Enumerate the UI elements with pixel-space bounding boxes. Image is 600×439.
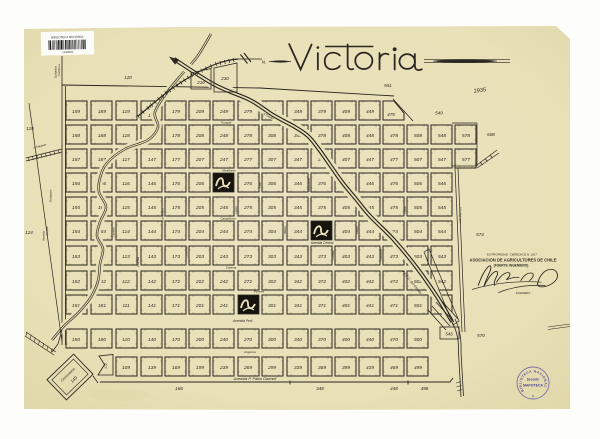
svg-text:399: 399 (342, 365, 350, 371)
svg-text:308: 308 (268, 133, 276, 139)
svg-text:400: 400 (342, 337, 350, 343)
svg-text:1010991: 1010991 (62, 50, 73, 54)
svg-text:172: 172 (104, 363, 108, 369)
svg-text:476: 476 (390, 181, 398, 187)
svg-text:Avenida: Avenida (42, 231, 46, 243)
svg-text:498: 498 (421, 386, 429, 391)
svg-text:349: 349 (294, 109, 302, 115)
svg-text:175: 175 (172, 205, 180, 211)
svg-text:159: 159 (72, 109, 80, 115)
svg-text:N.: N. (262, 60, 267, 65)
svg-text:Caupolican: Caupolican (220, 217, 235, 221)
svg-text:Prat: Prat (258, 182, 262, 187)
svg-text:339: 339 (294, 365, 302, 371)
svg-text:188: 188 (98, 133, 106, 139)
svg-text:499: 499 (414, 365, 422, 371)
svg-text:373: 373 (318, 254, 326, 260)
svg-text:343: 343 (294, 254, 302, 260)
svg-text:Freire: Freire (403, 206, 407, 214)
svg-text:407: 407 (342, 157, 350, 163)
svg-text:301: 301 (268, 303, 276, 309)
svg-text:577: 577 (462, 157, 470, 163)
svg-text:543: 543 (438, 254, 446, 260)
svg-text:INGENIERO: INGENIERO (516, 291, 531, 295)
svg-text:304: 304 (268, 229, 276, 235)
svg-text:340: 340 (294, 337, 302, 343)
svg-text:449: 449 (366, 109, 374, 115)
svg-text:201: 201 (195, 303, 204, 309)
svg-text:470: 470 (390, 337, 398, 343)
svg-text:500: 500 (414, 337, 422, 343)
svg-text:277: 277 (243, 157, 252, 163)
svg-text:376: 376 (318, 181, 326, 187)
svg-text:109: 109 (122, 365, 130, 371)
svg-text:143: 143 (148, 254, 156, 260)
svg-text:448: 448 (366, 133, 374, 139)
svg-text:269: 269 (243, 365, 252, 371)
svg-text:302: 302 (268, 279, 276, 285)
svg-text:477: 477 (390, 157, 398, 163)
svg-text:Lautaro: Lautaro (112, 227, 116, 237)
svg-text:BIBLIOTECA NACIONAL: BIBLIOTECA NACIONAL (51, 35, 84, 40)
svg-text:369: 369 (318, 365, 326, 371)
svg-text:MAPOTECA: MAPOTECA (523, 384, 544, 388)
svg-text:546: 546 (438, 181, 446, 187)
svg-text:203: 203 (195, 254, 204, 260)
svg-text:345: 345 (294, 205, 302, 211)
svg-text:207: 207 (195, 157, 204, 163)
svg-text:341: 341 (294, 303, 302, 309)
svg-text:472: 472 (390, 279, 398, 285)
svg-text:442: 442 (366, 279, 374, 285)
svg-text:408: 408 (342, 133, 350, 139)
svg-text:548: 548 (438, 133, 446, 139)
svg-text:128: 128 (26, 126, 34, 131)
svg-text:147: 147 (148, 157, 156, 163)
svg-text:Miraflores: Miraflores (222, 169, 236, 173)
svg-text:Avenida Prof.: Avenida Prof. (232, 319, 253, 323)
svg-text:114: 114 (122, 229, 130, 235)
svg-text:249: 249 (219, 109, 228, 115)
svg-text:Esmeralda: Esmeralda (161, 208, 165, 222)
svg-text:172: 172 (172, 279, 180, 285)
svg-text:205: 205 (195, 205, 204, 211)
svg-text:181: 181 (98, 303, 106, 309)
svg-text:Chorrillos: Chorrillos (379, 248, 383, 260)
svg-text:303: 303 (268, 254, 276, 260)
svg-text:180: 180 (98, 337, 106, 343)
svg-text:544: 544 (438, 229, 446, 235)
svg-text:248: 248 (219, 133, 228, 139)
svg-text:348: 348 (316, 386, 324, 391)
svg-text:275: 275 (243, 205, 252, 211)
svg-text:Lagos: Lagos (234, 206, 238, 214)
svg-text:Anganos: Anganos (243, 350, 256, 354)
svg-text:475: 475 (390, 205, 398, 211)
svg-text:547: 547 (438, 157, 446, 163)
svg-text:439: 439 (366, 365, 374, 371)
svg-text:549: 549 (435, 111, 443, 116)
svg-text:200: 200 (195, 337, 204, 343)
svg-text:Avenida P. Pablo Dartnell: Avenida P. Pablo Dartnell (233, 377, 277, 381)
svg-text:ES PROPIEDAD - DERECHOS N.: ES PROPIEDAD - DERECHOS N. 1617 (487, 253, 537, 257)
svg-text:501: 501 (414, 303, 422, 309)
svg-text:306: 306 (268, 181, 276, 187)
svg-text:305: 305 (268, 205, 276, 211)
svg-text:Bilbao: Bilbao (283, 226, 287, 234)
svg-text:157: 157 (72, 157, 80, 163)
svg-text:478: 478 (390, 133, 398, 139)
svg-text:Rodriguez: Rodriguez (49, 189, 53, 202)
svg-text:178: 178 (172, 133, 180, 139)
svg-text:142: 142 (148, 279, 156, 285)
svg-text:144: 144 (148, 229, 156, 235)
svg-text:Baquedano: Baquedano (307, 177, 311, 192)
svg-text:479: 479 (387, 112, 395, 117)
svg-text:299: 299 (267, 365, 276, 371)
svg-text:113: 113 (122, 254, 130, 260)
svg-text:111: 111 (122, 303, 130, 309)
svg-text:ASOCIACION DE AGRICULTORES DE: ASOCIACION DE AGRICULTORES DE CHILE (470, 257, 557, 262)
svg-text:115: 115 (122, 205, 130, 211)
svg-text:444: 444 (366, 229, 374, 235)
svg-text:239: 239 (219, 365, 228, 371)
svg-text:141: 141 (148, 303, 156, 309)
svg-text:Calama: Calama (226, 266, 237, 270)
svg-text:446: 446 (366, 181, 374, 187)
svg-text:208: 208 (195, 133, 204, 139)
svg-text:244: 244 (219, 229, 228, 235)
svg-text:Sección: Sección (527, 378, 540, 382)
svg-text:404: 404 (342, 229, 350, 235)
svg-text:504: 504 (414, 229, 422, 235)
svg-text:443: 443 (366, 254, 374, 260)
svg-text:110: 110 (122, 337, 130, 343)
svg-text:342: 342 (294, 279, 302, 285)
svg-text:279: 279 (243, 109, 252, 115)
svg-text:402: 402 (342, 279, 350, 285)
svg-text:440: 440 (366, 337, 374, 343)
svg-text:Quilquilco: Quilquilco (54, 65, 58, 78)
svg-text:273: 273 (243, 254, 252, 260)
svg-text:546: 546 (445, 332, 453, 337)
svg-text:409: 409 (342, 109, 350, 115)
svg-text:170: 170 (172, 337, 180, 343)
svg-text:Los Carrera: Los Carrera (458, 207, 463, 223)
svg-text:179: 179 (172, 109, 180, 115)
svg-text:247: 247 (219, 157, 228, 163)
svg-text:551: 551 (384, 83, 392, 88)
svg-text:448: 448 (390, 386, 398, 391)
svg-text:506: 506 (414, 181, 422, 187)
svg-text:545: 545 (438, 205, 446, 211)
svg-text:118: 118 (122, 133, 130, 139)
svg-text:154: 154 (72, 229, 80, 235)
svg-text:371: 371 (318, 303, 326, 309)
svg-text:405: 405 (342, 205, 350, 211)
svg-text:202: 202 (195, 279, 204, 285)
svg-text:176: 176 (172, 181, 180, 187)
svg-text:274: 274 (243, 229, 252, 235)
svg-text:507: 507 (414, 157, 422, 163)
svg-text:Colocolo: Colocolo (185, 246, 189, 257)
svg-text:169: 169 (172, 365, 180, 371)
svg-text:447: 447 (366, 157, 374, 163)
svg-text:120: 120 (124, 75, 132, 80)
svg-text:230: 230 (220, 76, 229, 81)
svg-text:119: 119 (122, 109, 130, 115)
svg-text:(FUERTE INGENIERO): (FUERTE INGENIERO) (494, 264, 529, 268)
svg-text:307: 307 (268, 157, 276, 163)
svg-text:370: 370 (318, 337, 326, 343)
svg-text:Condell: Condell (331, 250, 335, 260)
svg-text:206: 206 (195, 181, 204, 187)
svg-text:168: 168 (175, 386, 183, 391)
svg-text:508: 508 (414, 133, 422, 139)
svg-text:242: 242 (219, 279, 228, 285)
svg-text:146: 146 (148, 181, 156, 187)
svg-text:608: 608 (487, 132, 495, 137)
svg-text:278: 278 (243, 133, 252, 139)
svg-text:Vilumilla: Vilumilla (136, 256, 140, 267)
svg-text:372: 372 (318, 279, 326, 285)
svg-text:403: 403 (342, 254, 350, 260)
svg-text:156: 156 (72, 181, 80, 187)
svg-text:270: 270 (243, 337, 252, 343)
svg-text:473: 473 (390, 254, 398, 260)
svg-text:375: 375 (318, 205, 326, 211)
svg-text:Avenida Central: Avenida Central (310, 241, 334, 245)
svg-text:245: 245 (219, 205, 228, 211)
svg-text:570: 570 (477, 333, 485, 338)
svg-text:469: 469 (390, 365, 398, 371)
svg-text:401: 401 (342, 303, 350, 309)
svg-text:139: 139 (148, 365, 156, 371)
svg-text:199: 199 (196, 365, 204, 371)
svg-text:171: 171 (172, 303, 180, 309)
svg-text:578: 578 (462, 133, 470, 139)
svg-text:210: 210 (196, 80, 205, 85)
svg-text:300: 300 (268, 337, 276, 343)
svg-text:241: 241 (219, 303, 228, 309)
svg-text:117: 117 (122, 157, 130, 163)
svg-text:116: 116 (122, 181, 130, 187)
svg-text:505: 505 (414, 205, 422, 211)
svg-text:378: 378 (318, 133, 326, 139)
svg-text:145: 145 (148, 205, 156, 211)
svg-text:155: 155 (72, 205, 80, 211)
svg-text:189: 189 (98, 109, 106, 115)
svg-text:379: 379 (318, 109, 326, 115)
svg-text:209: 209 (195, 109, 204, 115)
svg-text:177: 177 (172, 157, 180, 163)
svg-text:112: 112 (122, 279, 130, 285)
svg-text:240: 240 (219, 337, 228, 343)
svg-text:150: 150 (72, 337, 80, 343)
svg-text:Camino a: Camino a (57, 64, 61, 76)
svg-text:173: 173 (172, 254, 180, 260)
svg-text:140: 140 (148, 337, 156, 343)
svg-text:158: 158 (72, 133, 80, 139)
svg-text:Tucapel: Tucapel (221, 121, 232, 125)
svg-text:346: 346 (294, 181, 302, 187)
svg-text:152: 152 (72, 279, 80, 285)
svg-text:Pinares: Pinares (254, 290, 265, 294)
svg-text:574: 574 (476, 232, 484, 237)
svg-text:276: 276 (243, 181, 252, 187)
svg-text:347: 347 (294, 157, 302, 163)
svg-text:441: 441 (366, 303, 374, 309)
svg-text:471: 471 (390, 303, 398, 309)
svg-text:272: 272 (243, 279, 252, 285)
svg-text:Raquel: Raquel (45, 226, 49, 235)
svg-text:204: 204 (195, 229, 204, 235)
svg-text:153: 153 (72, 254, 80, 260)
svg-text:243: 243 (219, 254, 228, 260)
svg-text:124: 124 (25, 230, 33, 235)
svg-text:174: 174 (172, 229, 180, 235)
svg-text:Maipu: Maipu (355, 226, 359, 234)
svg-text:344: 344 (294, 229, 302, 235)
